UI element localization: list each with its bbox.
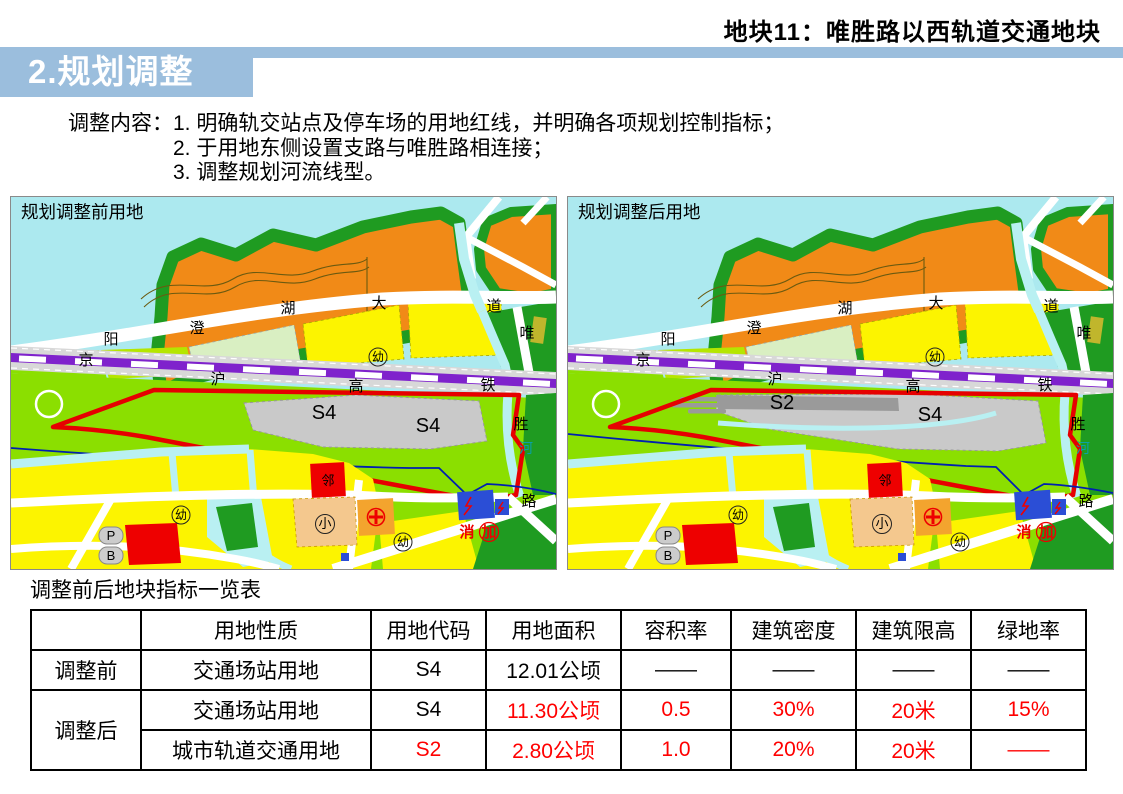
metrics-section: 调整前后地块指标一览表 用地性质 用地代码 用地面积 容积率 建筑密度 建筑限高… xyxy=(30,574,1087,771)
neighborhood-label: 邻 xyxy=(878,473,891,488)
bus-label: B xyxy=(107,548,116,563)
parcel-utility xyxy=(341,553,349,561)
header-cell: 用地代码 xyxy=(371,610,486,650)
river-label: 河 xyxy=(1076,440,1090,456)
road-label-railway: 沪 xyxy=(210,371,225,388)
header-cell: 用地性质 xyxy=(141,610,371,650)
table-cell: S4 xyxy=(371,690,486,730)
table-cell: 0.5 xyxy=(621,690,731,730)
road-label-railway: 高 xyxy=(905,378,920,395)
table-cell: —— xyxy=(856,650,971,690)
parcel-red xyxy=(682,523,738,565)
table-cell: 20米 xyxy=(856,690,971,730)
table-cell: S4 xyxy=(371,650,486,690)
map-after: 规划调整后用地 S2S4阳澄湖大道京沪高铁唯胜路河幼幼幼邻小PB消加 xyxy=(567,196,1114,570)
road-label-avenue: 大 xyxy=(928,295,943,312)
kindergarten-label: 幼 xyxy=(732,508,744,522)
page-title: 地块11：唯胜路以西轨道交通地块 xyxy=(724,12,1101,47)
road-label-east: 胜 xyxy=(513,416,528,433)
table-header-row: 用地性质 用地代码 用地面积 容积率 建筑密度 建筑限高 绿地率 xyxy=(31,610,1086,650)
map-before-canvas: S4S4阳澄湖大道京沪高铁唯胜路河幼幼幼邻小PB消加 xyxy=(11,197,556,569)
bus-label: B xyxy=(664,548,673,563)
railway-dash xyxy=(800,366,827,373)
table-cell: —— xyxy=(971,650,1086,690)
header-cell: 绿地率 xyxy=(971,610,1086,650)
fire-label: 消 xyxy=(1016,523,1031,541)
canal xyxy=(172,453,176,498)
kindergarten-label: 幼 xyxy=(397,535,409,549)
road-label-avenue: 湖 xyxy=(837,300,852,317)
road-label-east: 路 xyxy=(521,493,536,510)
table-cell: —— xyxy=(731,650,856,690)
road-label-avenue: 澄 xyxy=(746,320,761,337)
kindergarten-label: 幼 xyxy=(929,350,941,364)
railway-dash xyxy=(688,361,715,368)
road-label-east: 唯 xyxy=(1076,325,1091,342)
table-cell: —— xyxy=(621,650,731,690)
parking-label: P xyxy=(107,528,116,543)
header-cell: 用地面积 xyxy=(486,610,621,650)
railway-dash xyxy=(576,356,603,363)
map-before: 规划调整前用地 S4S4阳澄湖大道京沪高铁唯胜路河幼幼幼邻小PB消加 xyxy=(10,196,557,570)
railway-dash xyxy=(411,374,438,381)
parking-label: P xyxy=(664,528,673,543)
railway-dash xyxy=(243,366,270,373)
parcel-utility xyxy=(898,553,906,561)
neighborhood-label: 邻 xyxy=(321,473,334,488)
road-label-east: 胜 xyxy=(1070,416,1085,433)
slide-page: 地块11：唯胜路以西轨道交通地块 2.规划调整 调整内容： 1. 明确轨交站点及… xyxy=(0,0,1123,794)
road-label-east: 路 xyxy=(1078,493,1093,510)
road-label-railway: 铁 xyxy=(1037,377,1052,394)
table-cell: 交通场站用地 xyxy=(141,690,371,730)
railway-dash xyxy=(19,356,46,363)
parcel-utility xyxy=(1052,499,1066,515)
table-row: 调整后 交通场站用地 S4 11.30公顷 0.5 30% 20米 15% xyxy=(31,690,1086,730)
header-cell: 建筑限高 xyxy=(856,610,971,650)
table-cell: 20% xyxy=(731,730,856,770)
zone-label-s2: S2 xyxy=(770,392,794,414)
road-label-railway: 京 xyxy=(78,352,93,369)
table-cell: 城市轨道交通用地 xyxy=(141,730,371,770)
road-label-avenue: 澄 xyxy=(189,320,204,337)
road-label-avenue: 阳 xyxy=(660,331,675,348)
railway-dash xyxy=(856,369,883,376)
map-after-canvas: S2S4阳澄湖大道京沪高铁唯胜路河幼幼幼邻小PB消加 xyxy=(568,197,1113,569)
fire-label: 消 xyxy=(459,523,474,541)
railway-dash xyxy=(968,374,995,381)
table-row: 城市轨道交通用地 S2 2.80公顷 1.0 20% 20米 —— xyxy=(31,730,1086,770)
railway-dash xyxy=(131,361,158,368)
parcel-red xyxy=(125,523,181,565)
section-title: 2.规划调整 xyxy=(0,47,253,97)
header-cell: 建筑密度 xyxy=(731,610,856,650)
map-before-title: 规划调整前用地 xyxy=(21,199,144,224)
railway-dash xyxy=(1080,380,1107,387)
road-label-railway: 铁 xyxy=(480,377,495,394)
section-title-box: 2.规划调整 xyxy=(0,47,253,97)
metrics-table: 用地性质 用地代码 用地面积 容积率 建筑密度 建筑限高 绿地率 调整前 交通场… xyxy=(30,609,1087,771)
table-cell: 15% xyxy=(971,690,1086,730)
canal xyxy=(729,453,733,498)
road-label-avenue: 道 xyxy=(1043,298,1058,315)
school-label: 小 xyxy=(318,516,331,531)
road-label-railway: 高 xyxy=(348,378,363,395)
road-label-east: 唯 xyxy=(519,325,534,342)
table-cell: 11.30公顷 xyxy=(486,690,621,730)
map-after-title: 规划调整后用地 xyxy=(578,199,701,224)
road-label-avenue: 湖 xyxy=(280,300,295,317)
parcel-utility xyxy=(495,499,509,515)
row-group-cell: 调整前 xyxy=(31,650,141,690)
railway-dash xyxy=(523,380,550,387)
table-title: 调整前后地块指标一览表 xyxy=(30,574,1087,604)
zone-label-s4: S4 xyxy=(312,402,336,424)
road-label-railway: 沪 xyxy=(767,371,782,388)
note-item: 1. 明确轨交站点及停车场的用地红线，并明确各项规划控制指标； xyxy=(173,112,784,137)
table-cell: S2 xyxy=(371,730,486,770)
school-label: 小 xyxy=(875,516,888,531)
railway-dash xyxy=(744,364,771,371)
railway-dash xyxy=(187,364,214,371)
kindergarten-label: 幼 xyxy=(954,535,966,549)
railway-dash xyxy=(299,369,326,376)
road-label-avenue: 阳 xyxy=(103,331,118,348)
zone-s2-track xyxy=(688,409,726,414)
table-cell: 交通场站用地 xyxy=(141,650,371,690)
gas-label: 加 xyxy=(1037,524,1053,541)
table-cell: 1.0 xyxy=(621,730,731,770)
adjustment-note: 调整内容： 1. 明确轨交站点及停车场的用地红线，并明确各项规划控制指标； 2.… xyxy=(68,112,784,186)
road-label-avenue: 道 xyxy=(486,298,501,315)
note-items: 1. 明确轨交站点及停车场的用地红线，并明确各项规划控制指标； 2. 于用地东侧… xyxy=(173,112,784,186)
table-cell: 2.80公顷 xyxy=(486,730,621,770)
note-label: 调整内容： xyxy=(68,112,173,186)
kindergarten-label: 幼 xyxy=(372,350,384,364)
table-cell: 12.01公顷 xyxy=(486,650,621,690)
header-cell: 容积率 xyxy=(621,610,731,650)
parcel-utility xyxy=(457,490,495,520)
river-label: 河 xyxy=(519,440,533,456)
note-item: 2. 于用地东侧设置支路与唯胜路相连接； xyxy=(173,137,784,162)
table-cell: —— xyxy=(971,730,1086,770)
table-cell: 20米 xyxy=(856,730,971,770)
parcel-utility xyxy=(1014,490,1052,520)
table-cell: 30% xyxy=(731,690,856,730)
road-label-avenue: 大 xyxy=(371,295,386,312)
zone-label-s4: S4 xyxy=(918,404,942,426)
header-cell xyxy=(31,610,141,650)
gas-label: 加 xyxy=(480,524,496,541)
table-row: 调整前 交通场站用地 S4 12.01公顷 —— —— —— —— xyxy=(31,650,1086,690)
kindergarten-label: 幼 xyxy=(175,508,187,522)
zone-label-s4: S4 xyxy=(416,415,440,437)
note-item: 3. 调整规划河流线型。 xyxy=(173,161,784,186)
road-label-railway: 京 xyxy=(635,352,650,369)
row-group-cell: 调整后 xyxy=(31,690,141,770)
